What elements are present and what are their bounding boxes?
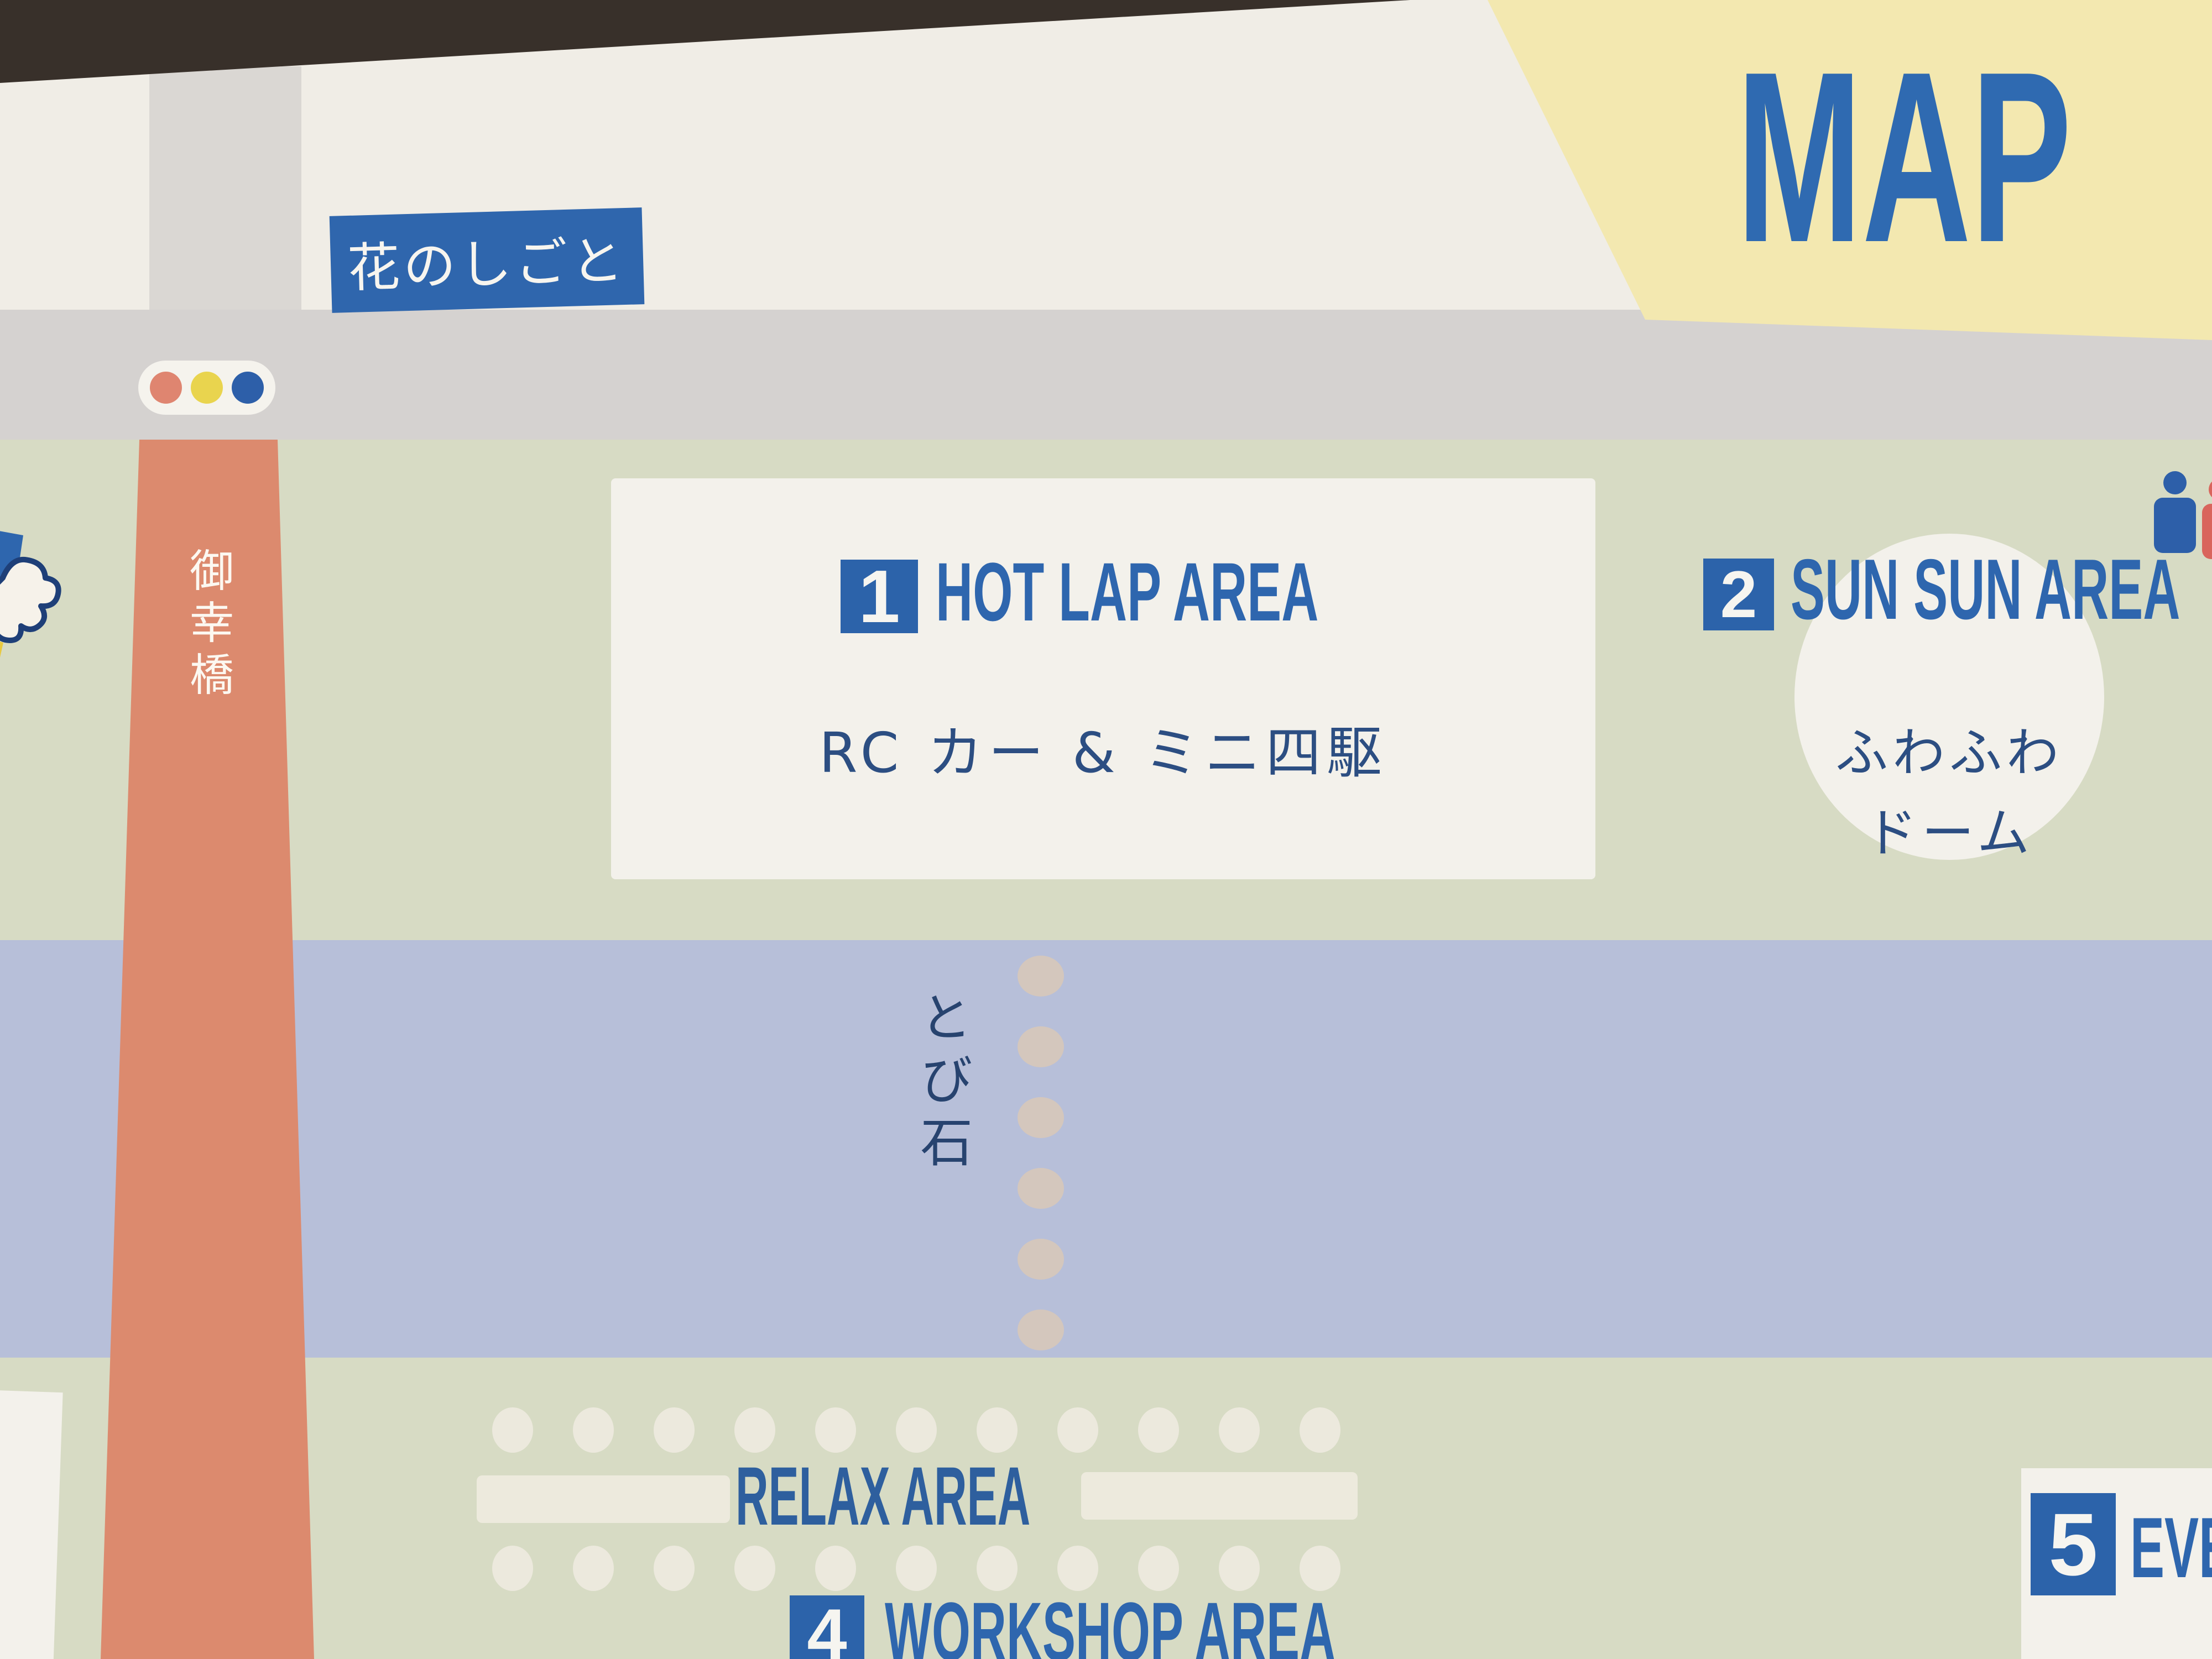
hot-lap-area-box (611, 478, 1595, 879)
north-road (149, 66, 301, 315)
relax-seat (1057, 1407, 1098, 1453)
miyuki-bridge-label: 御幸橋 (182, 547, 233, 703)
stepping-stones (1018, 956, 1064, 1350)
event-map-photo: 花のしごと MAP 1 HOT LAP AREA RC カー & ミニ四駆 2 … (0, 0, 2212, 1659)
relax-seat (1300, 1546, 1340, 1591)
area4-number-badge: 4 (790, 1595, 864, 1659)
relax-table-right (1081, 1472, 1358, 1520)
relax-seat (573, 1407, 614, 1453)
relax-seat (654, 1546, 695, 1591)
stepping-stone (1018, 1168, 1064, 1209)
clipped-area-box-left (0, 1389, 63, 1659)
stepping-stone (1018, 1310, 1064, 1350)
relax-seat (492, 1546, 533, 1591)
relax-table-left (477, 1475, 730, 1523)
relax-seat (896, 1546, 937, 1591)
relax-seat (492, 1407, 533, 1453)
restroom-female-icon (2202, 478, 2212, 561)
area1-number: 1 (858, 554, 900, 639)
area1-subtitle: RC カー & ミニ四駆 (611, 708, 1595, 788)
relax-seat (1138, 1546, 1179, 1591)
area1-name: HOT LAP AREA (936, 550, 1318, 633)
relax-seat (977, 1407, 1018, 1453)
relax-seat (573, 1546, 614, 1591)
traffic-signal (138, 361, 275, 415)
relax-seat (1300, 1407, 1340, 1453)
area2-number: 2 (1720, 556, 1757, 633)
river (0, 940, 2212, 1358)
area1-number-badge: 1 (841, 560, 918, 633)
stepping-stone (1018, 1239, 1064, 1280)
main-road (0, 310, 2212, 440)
relax-seat (896, 1407, 937, 1453)
signal-yellow-dot (191, 372, 223, 404)
relax-seat (654, 1407, 695, 1453)
area4-number: 4 (807, 1593, 847, 1659)
map-title: MAP (1736, 36, 2072, 279)
area2-subtitle-line1: ふわふわ (1794, 711, 2104, 786)
relax-seat (1057, 1546, 1098, 1591)
relax-area-label: RELAX AREA (735, 1454, 1030, 1537)
relax-seat (815, 1546, 856, 1591)
relax-seat (1219, 1546, 1260, 1591)
hana-no-shigoto-label: 花のしごと (346, 218, 628, 302)
relax-seats-top (492, 1407, 1340, 1453)
signal-red-dot (150, 372, 182, 404)
restroom-male-icon (2153, 471, 2197, 554)
relax-seat (734, 1407, 775, 1453)
signal-blue-dot (232, 372, 264, 404)
area2-number-badge: 2 (1703, 559, 1774, 630)
relax-seat (1138, 1407, 1179, 1453)
hana-no-shigoto-badge: 花のしごと (330, 207, 645, 313)
area5-number: 5 (2049, 1494, 2098, 1595)
area4-name: WORKSHOP AREA (885, 1590, 1335, 1659)
area2-subtitle-line2: ドーム (1794, 791, 2104, 867)
stepping-stone (1018, 956, 1064, 997)
relax-seats-bottom (492, 1546, 1340, 1591)
area5-name: EVE (2130, 1505, 2212, 1590)
area2-name: SUN SUN AREA (1791, 546, 2180, 632)
relax-seat (815, 1407, 856, 1453)
relax-seat (977, 1546, 1018, 1591)
area5-number-badge: 5 (2031, 1493, 2116, 1595)
relax-seat (734, 1546, 775, 1591)
relax-seat (1219, 1407, 1260, 1453)
stepping-stones-label: とび石 (911, 990, 972, 1177)
stepping-stone (1018, 1097, 1064, 1138)
stepping-stone (1018, 1026, 1064, 1067)
